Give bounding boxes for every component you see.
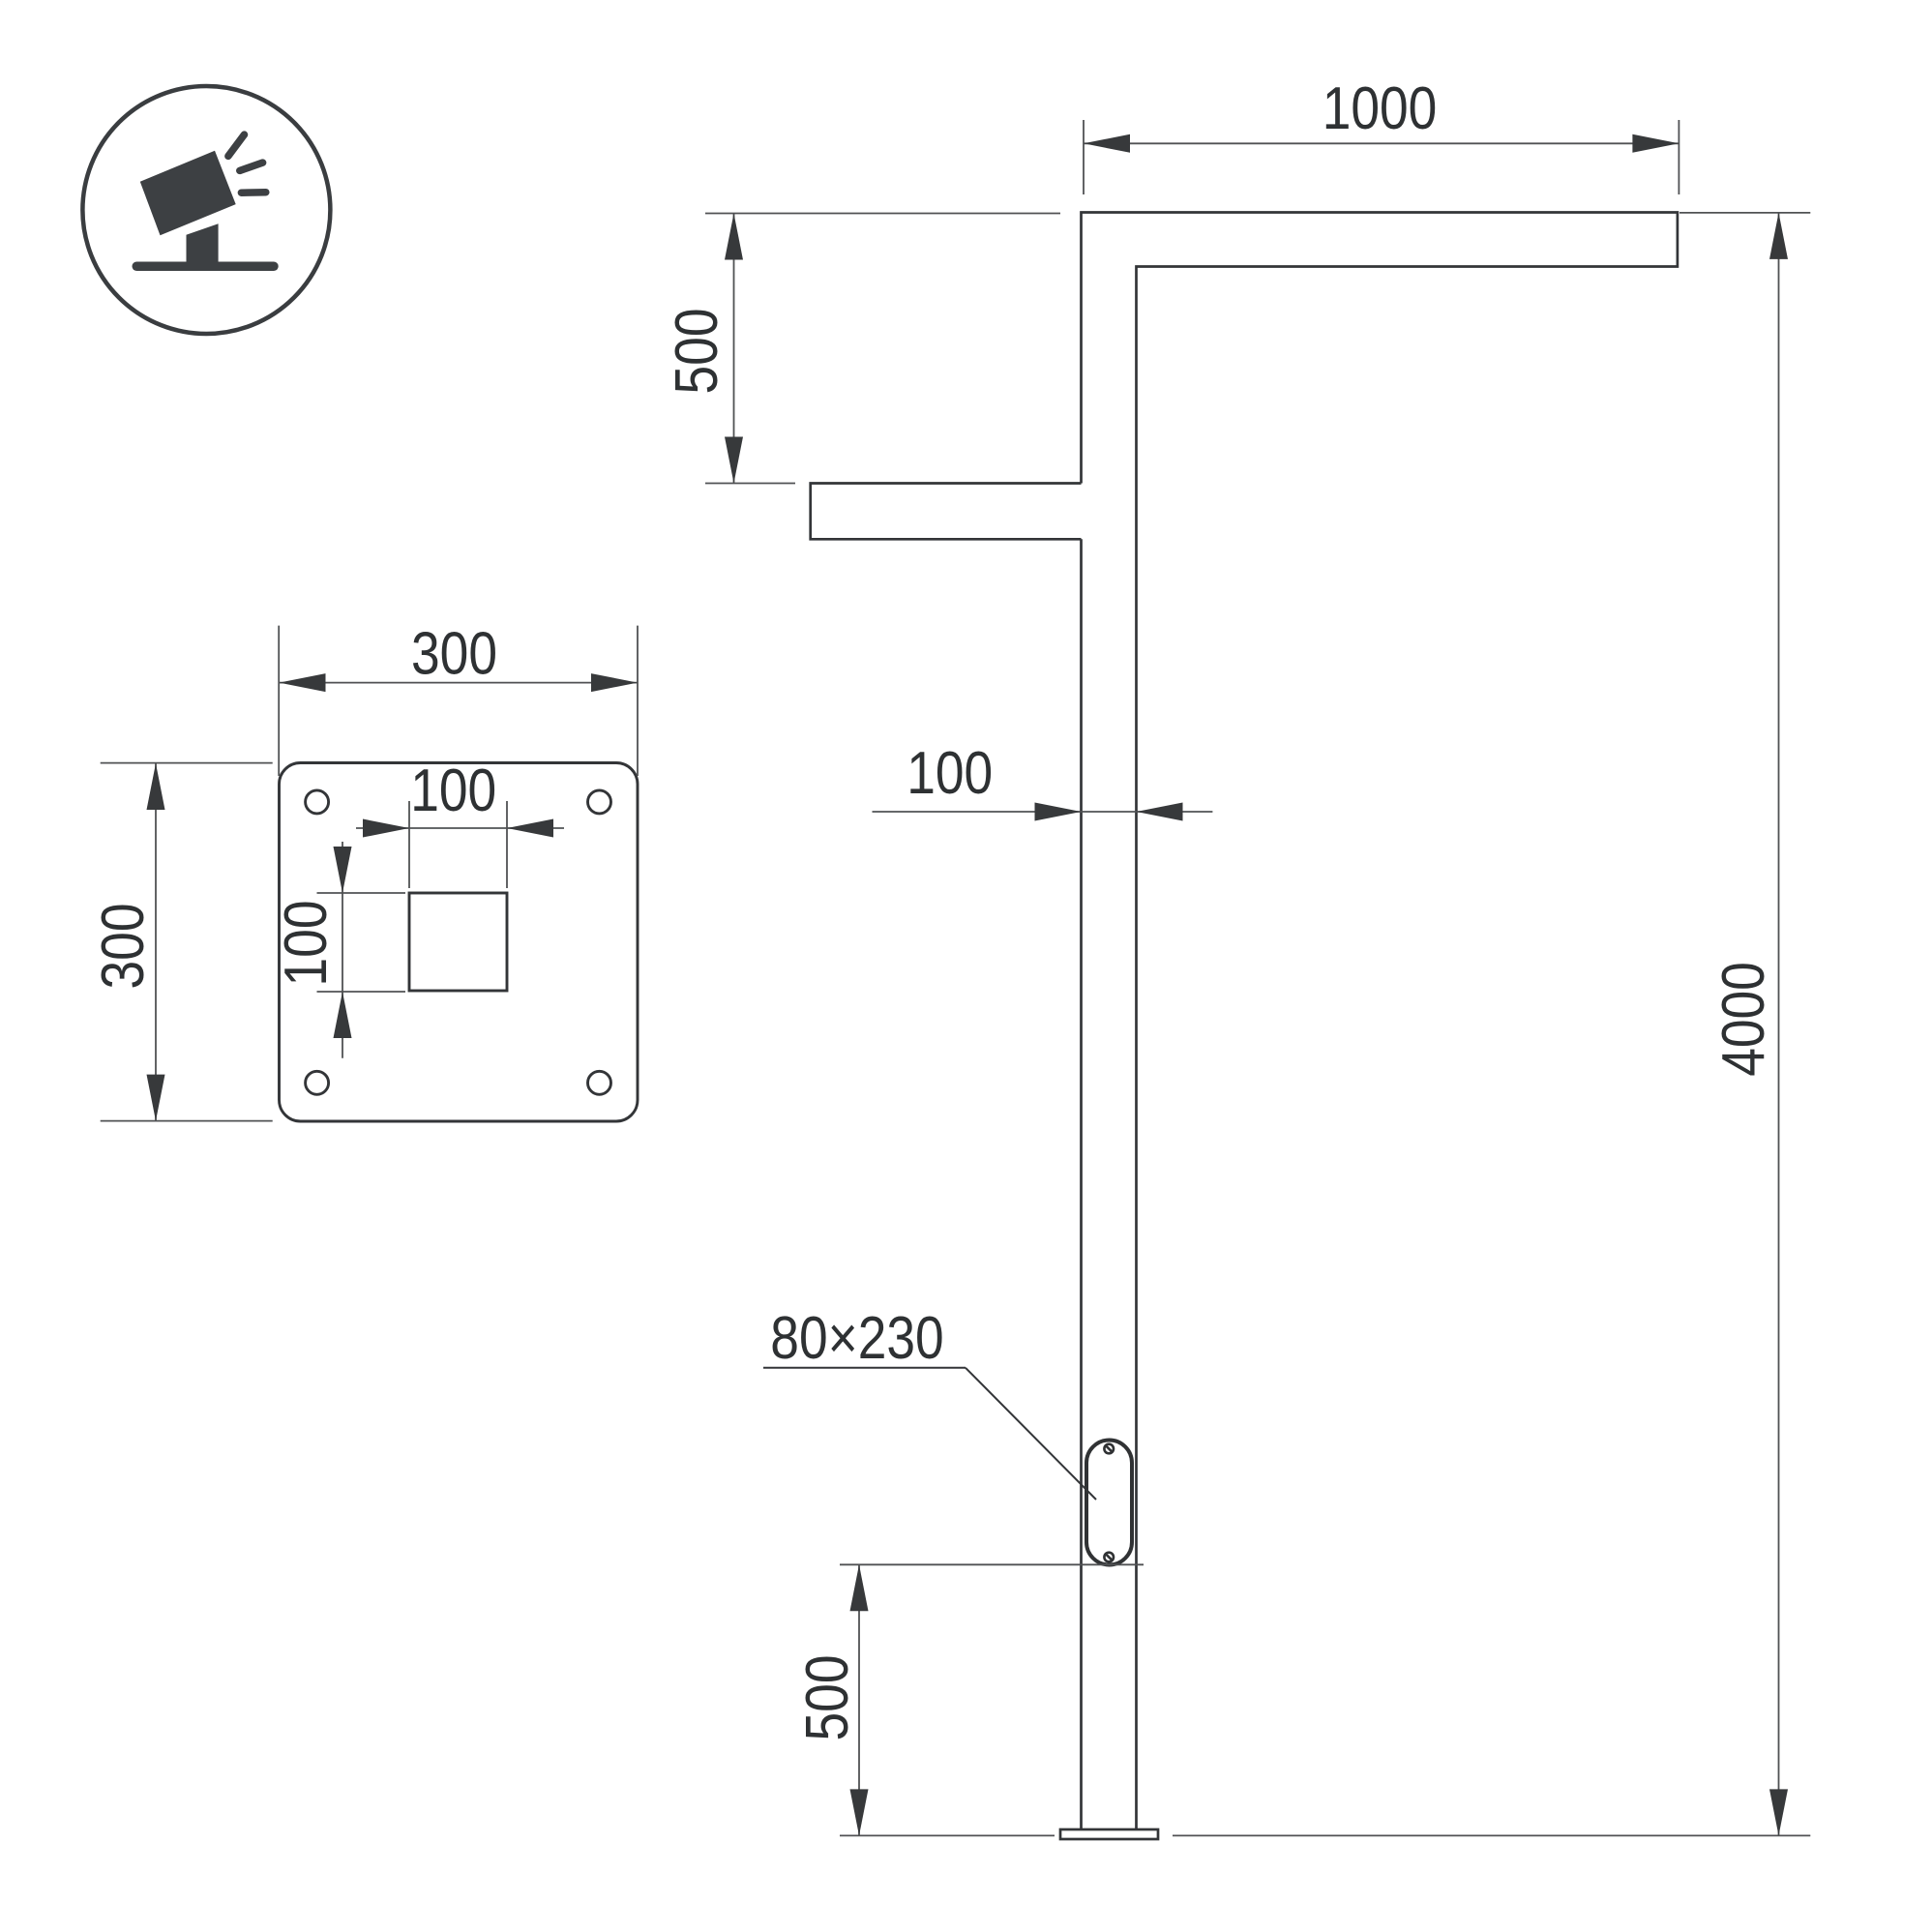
svg-text:80×230: 80×230 [770,1305,943,1372]
svg-text:100: 100 [273,901,340,987]
svg-text:500: 500 [664,309,730,395]
svg-text:100: 100 [410,758,496,824]
svg-text:300: 300 [90,904,157,990]
svg-text:100: 100 [907,740,993,807]
svg-text:1000: 1000 [1323,75,1438,142]
svg-text:500: 500 [794,1655,861,1741]
svg-text:300: 300 [411,621,497,688]
svg-text:4000: 4000 [1710,962,1777,1077]
